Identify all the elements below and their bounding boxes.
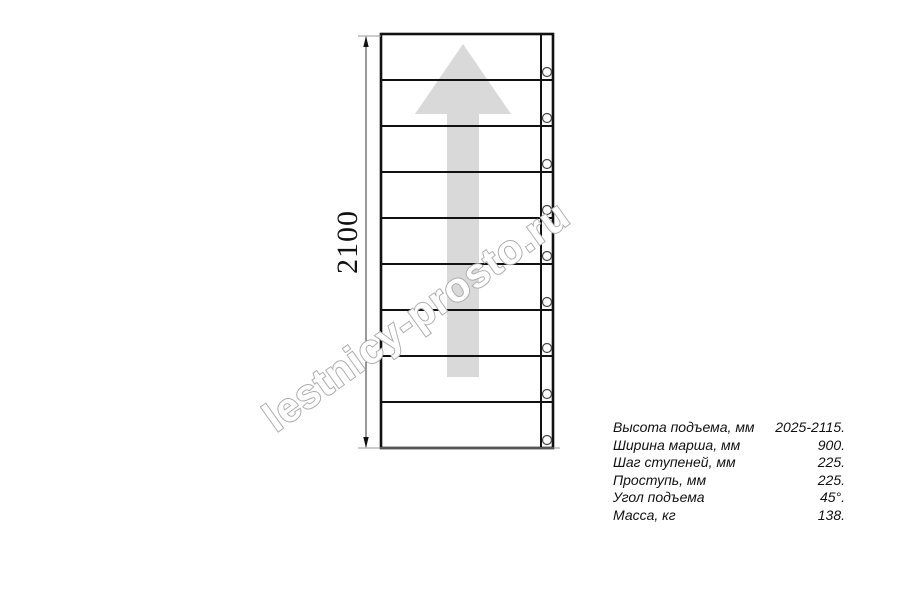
page-canvas: lestnicy-prosto.ru 2100 Высота подъема, … [0,0,900,600]
spec-row-width: Ширина марша, мм 900. [613,437,845,455]
spec-value: 138. [765,507,845,525]
mounting-holes [543,68,552,445]
mount-hole [543,114,552,123]
spec-label: Ширина марша, мм [613,437,765,455]
spec-row-step: Шаг ступеней, мм 225. [613,454,845,472]
spec-value: 45°. [765,489,845,507]
spec-table: Высота подъема, мм 2025-2115. Ширина мар… [613,419,845,524]
mount-hole [543,298,552,307]
spec-label: Высота подъема, мм [613,419,765,437]
dimension-arrowhead-bottom [363,437,368,448]
mount-hole [543,436,552,445]
spec-value: 2025-2115. [765,419,845,437]
mount-hole [543,68,552,77]
spec-value: 225. [765,454,845,472]
dimension-value: 2100 [331,210,365,274]
spec-value: 225. [765,472,845,490]
mount-hole [543,344,552,353]
mount-hole [543,390,552,399]
spec-label: Шаг ступеней, мм [613,454,765,472]
mount-hole [543,160,552,169]
spec-row-tread: Проступь, мм 225. [613,472,845,490]
spec-label: Масса, кг [613,507,765,525]
spec-label: Угол подъема [613,489,765,507]
spec-label: Проступь, мм [613,472,765,490]
dimension-arrowhead-top [363,36,368,47]
spec-row-height: Высота подъема, мм 2025-2115. [613,419,845,437]
spec-value: 900. [765,437,845,455]
spec-row-angle: Угол подъема 45°. [613,489,845,507]
spec-row-mass: Масса, кг 138. [613,507,845,525]
